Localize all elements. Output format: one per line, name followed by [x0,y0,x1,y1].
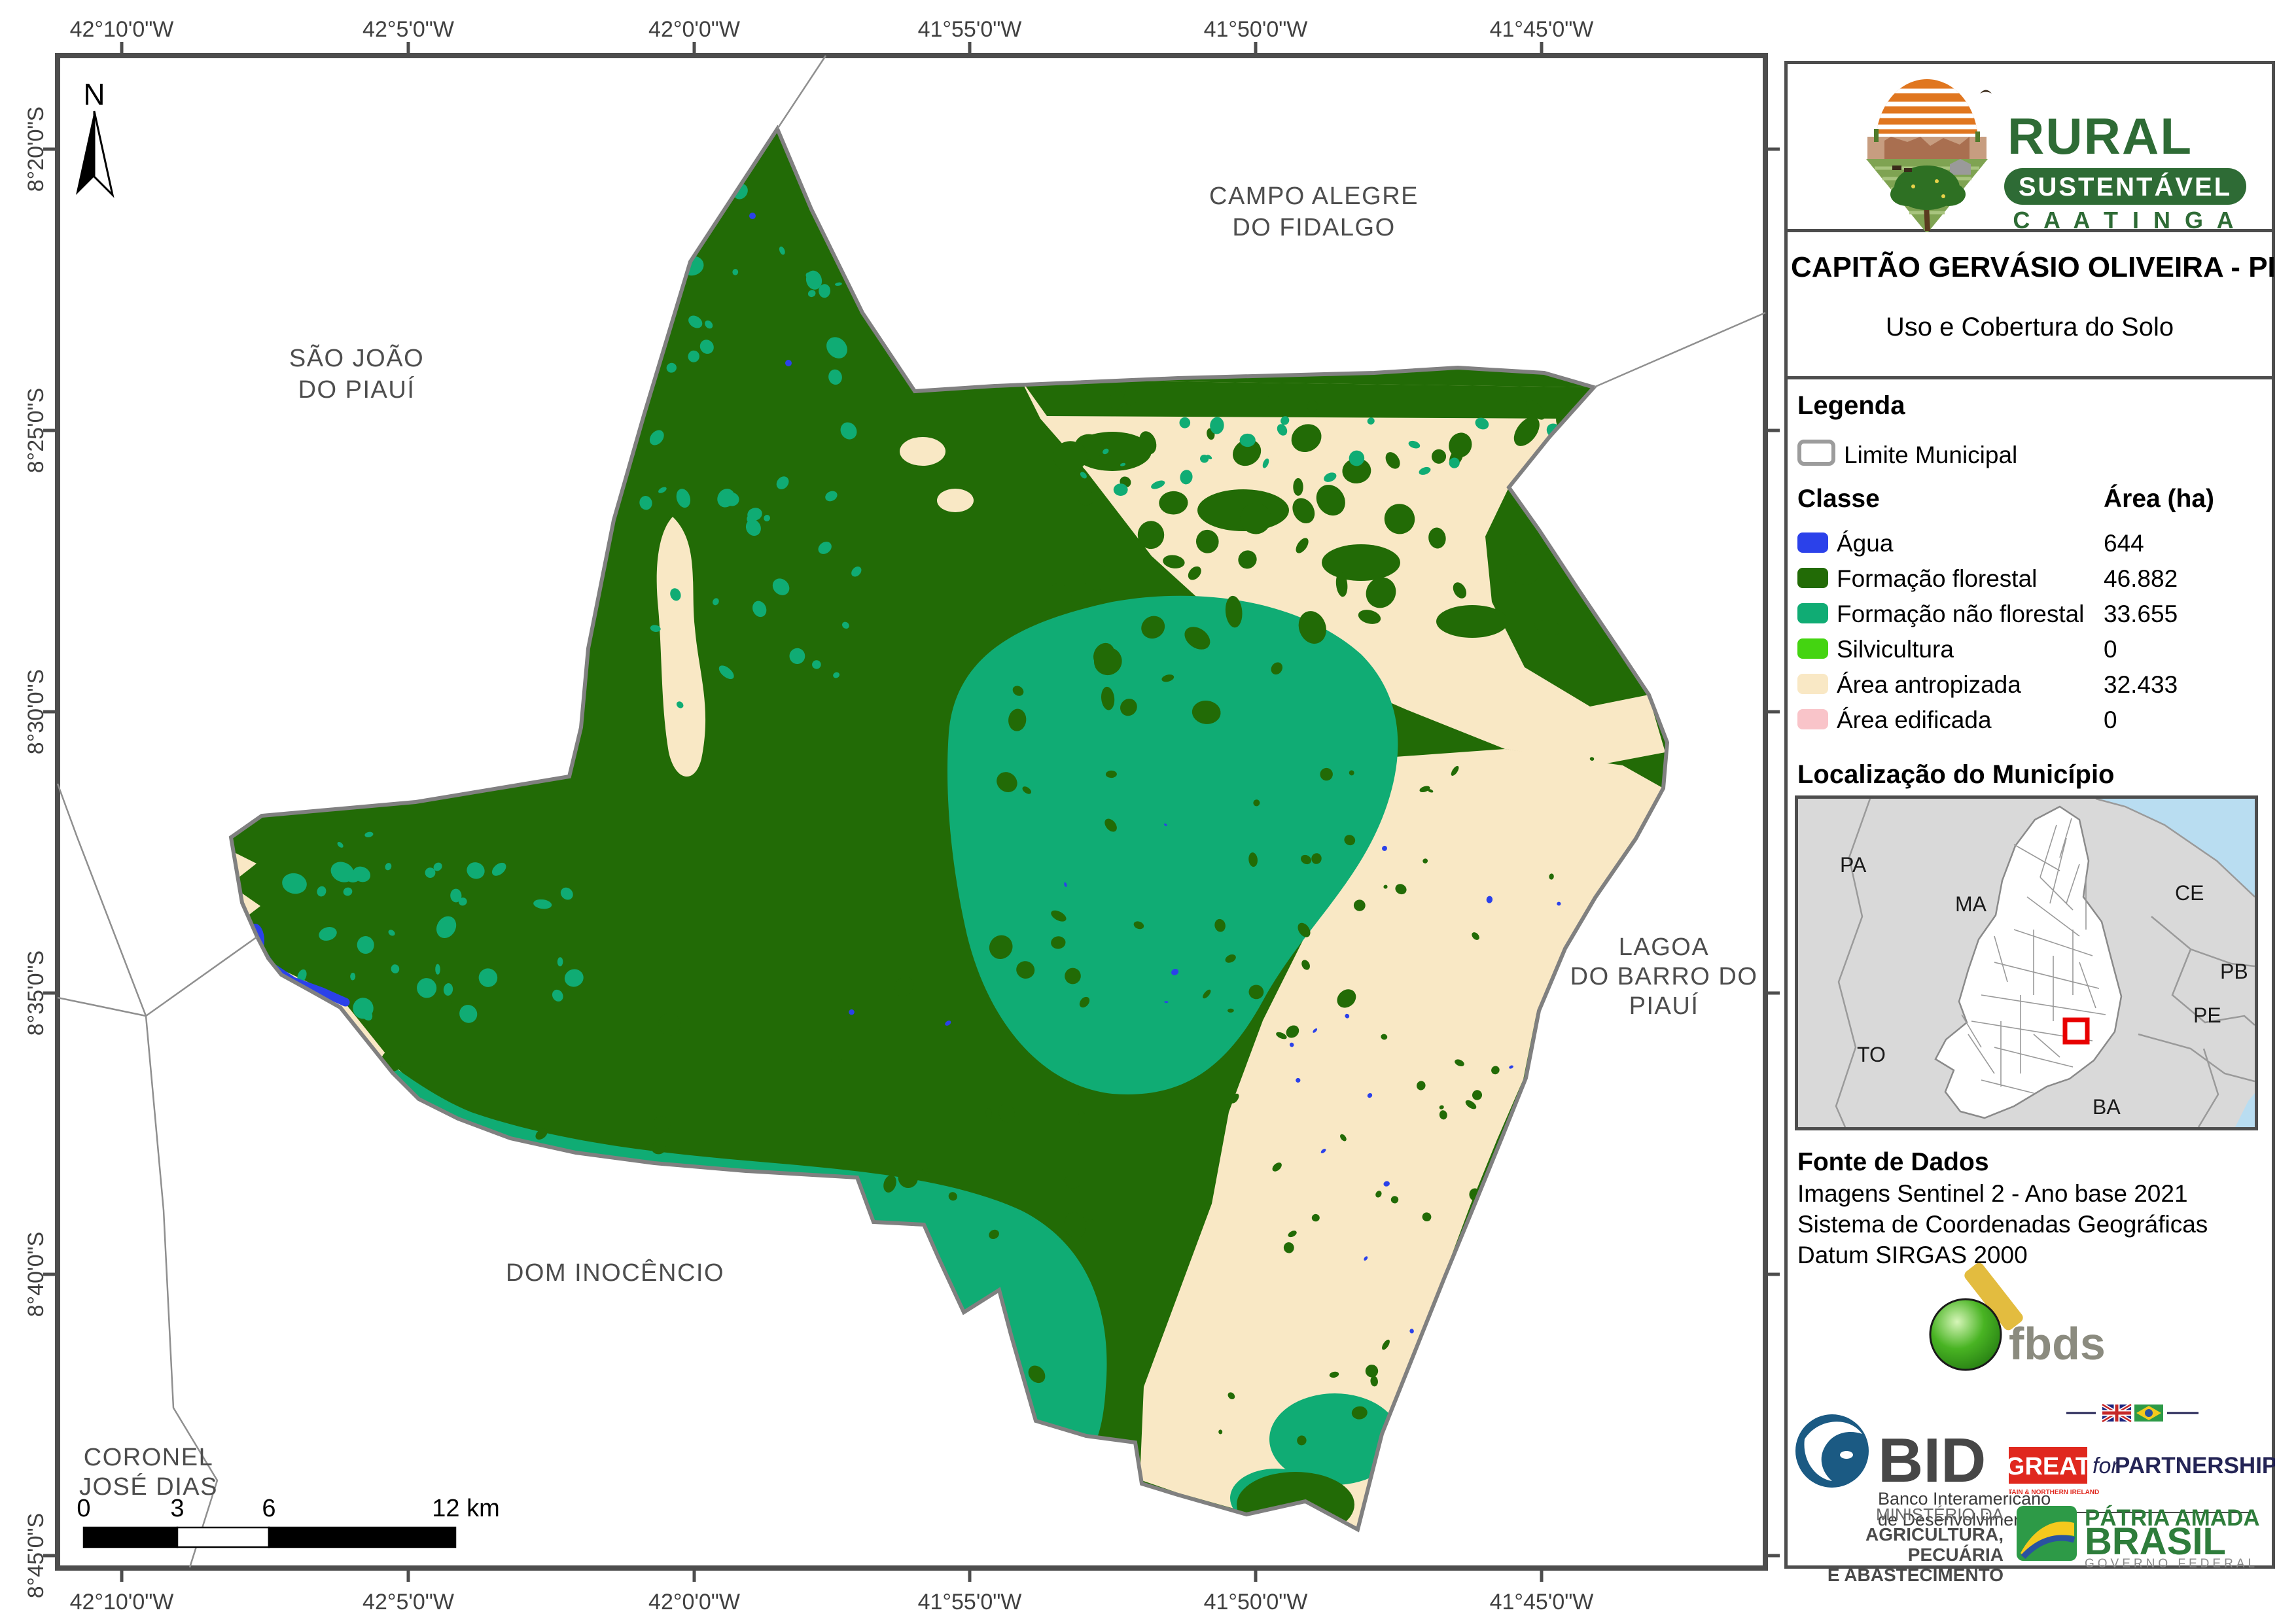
brazil-flag-icon [2134,1405,2163,1422]
label-lagoa: DO BARRO DO [1570,963,1758,990]
coord-left-2: 8°30'0"S [24,669,48,754]
legend-label-silvicultura: Silvicultura [1837,636,1954,663]
landcover-forest-blob [1436,605,1508,638]
fbds-logo: fbds [1911,1243,2107,1380]
label-sao-joao: SÃO JOÃO [289,344,424,372]
rural-sustentavel-caatinga-logo: RURAL SUSTENTÁVEL C A A T I N G A [1845,69,2264,232]
great-wordmark: GREAT [2009,1453,2091,1480]
inset-ocean-corner [2235,1093,2255,1127]
inset-municipality-highlight [2065,1020,2087,1042]
coord-top-3: 41°55'0"W [918,17,1022,42]
great-sub: BRITAIN & NORTHERN IRELAND [2009,1489,2099,1496]
coord-bottom-4: 41°50'0"W [1204,1590,1308,1614]
location-heading: Localização do Município [1797,760,2115,789]
scale-label-12: 12 km [432,1495,499,1522]
legend-swatch-edificada [1797,709,1828,729]
legend-value-agua: 644 [2104,530,2144,557]
legend-col-classe: Classe [1797,485,1880,514]
label-lagoa: LAGOA [1619,934,1709,961]
label-coronel: JOSÉ DIAS [79,1473,218,1501]
map-layout-sheet: 42°10'0"W 42°5'0"W 42°0'0"W 41°55'0"W 41… [0,0,2296,1623]
inset-state-pb: PB [2220,960,2248,983]
coord-bottom-3: 41°55'0"W [918,1590,1022,1614]
coord-top-5: 41°45'0"W [1490,17,1594,42]
logo-fruit [1935,179,1939,183]
legend-value-antropizada: 32.433 [2104,671,2178,699]
legend-swatch-antropizada [1797,674,1828,694]
logo-fruit [1911,184,1915,188]
map-title: CAPITÃO GERVÁSIO OLIVEIRA - PI [1791,252,2269,283]
bid-emblem-dot [1840,1451,1853,1459]
ministry-logo: MINISTÉRIO DA AGRICULTURA, PECUÁRIA E AB… [1793,1505,2004,1585]
scale-label-3: 3 [170,1495,184,1522]
label-dom-inocencio: DOM INOCÊNCIO [506,1259,724,1287]
logo-goat [1904,168,1912,172]
water-dot [749,213,756,219]
logo-bird-icon [1980,90,1992,94]
coord-bottom-0: 42°10'0"W [70,1590,174,1614]
inset-state-pe: PE [2193,1003,2221,1027]
legend-swatch-agua [1797,532,1828,553]
coord-left-4: 8°40'0"S [24,1232,48,1317]
label-lagoa: PIAUÍ [1629,992,1699,1020]
great-partnership-logo: GREAT for PARTNERSHIP BRITAIN & NORTHERN… [2009,1393,2275,1518]
coord-top-4: 41°50'0"W [1204,17,1308,42]
label-sao-joao: DO PIAUÍ [298,375,415,404]
source-heading: Fonte de Dados [1797,1149,1989,1177]
legend-label-edificada: Área edificada [1837,707,1992,734]
brasil-line3: GOVERNO FEDERAL [2085,1557,2258,1570]
coord-bottom-2: 42°0'0"W [648,1590,740,1614]
location-inset-map: PA MA CE PB PE TO BA [1798,799,2255,1127]
legend-swatch-nao-florestal [1797,603,1828,623]
fbds-wordmark: fbds [2009,1318,2106,1369]
logo-cactus [1975,131,1980,142]
logo-goat [1892,166,1901,170]
north-label: N [83,77,105,111]
inset-state-ba: BA [2093,1095,2121,1119]
label-campo-alegre: CAMPO ALEGRE [1209,183,1419,210]
coord-left-1: 8°25'0"S [24,388,48,473]
legend-heading: Legenda [1797,391,1905,420]
great-partnership: PARTNERSHIP [2115,1453,2275,1478]
scale-label-0: 0 [77,1495,90,1522]
coord-left-0: 8°20'0"S [24,107,48,192]
legend-swatch-florestal [1797,568,1828,588]
coord-bottom-1: 42°5'0"W [362,1590,454,1614]
limite-municipal-label: Limite Municipal [1844,442,2017,469]
bid-wordmark: BID [1878,1425,1986,1495]
legend-label-nao-florestal: Formação não florestal [1837,601,2084,628]
logo-tree-canopy [1932,183,1966,206]
legend-col-area: Área (ha) [2104,485,2214,514]
inset-state-ce: CE [2175,881,2204,905]
legend-value-nao-florestal: 33.655 [2104,601,2178,628]
legend-value-florestal: 46.882 [2104,565,2178,593]
ministry-line1: MINISTÉRIO DA [1793,1505,2004,1524]
map-subtitle: Uso e Cobertura do Solo [1791,313,2269,341]
label-campo-alegre: DO FIDALGO [1232,214,1395,241]
source-line-1: Imagens Sentinel 2 - Ano base 2021 [1797,1181,2188,1208]
patria-amada-brasil-logo: PÁTRIA AMADA BRASIL GOVERNO FEDERAL [2017,1502,2275,1570]
legend-value-edificada: 0 [2104,707,2117,734]
inset-state-ma: MA [1955,892,1987,916]
legend-label-agua: Água [1837,530,1893,557]
coord-left-5: 8°45'0"S [24,1513,48,1598]
inset-state-pa: PA [1840,853,1867,877]
coord-top-2: 42°0'0"W [648,17,740,42]
brand-caatinga: C A A T I N G A [2013,207,2237,232]
legend-label-antropizada: Área antropizada [1837,671,2021,699]
label-coronel: CORONEL [84,1444,213,1471]
water-dot [785,360,792,366]
logo-sun [1876,79,1978,142]
logo-fruit [1941,194,1945,198]
limite-municipal-swatch [1797,440,1835,466]
inset-state-to: TO [1857,1043,1886,1066]
fbds-sphere [1930,1299,2001,1370]
ministry-line2: AGRICULTURA, PECUÁRIA [1793,1524,2004,1565]
location-inset-frame: PA MA CE PB PE TO BA [1795,795,2258,1130]
main-map: 42°10'0"W 42°5'0"W 42°0'0"W 41°55'0"W 41… [0,0,1806,1623]
legend-value-silvicultura: 0 [2104,636,2117,663]
landcover-forest-blob [1322,544,1400,581]
scale-label-6: 6 [262,1495,275,1522]
logo-tree-canopy [1890,183,1924,206]
source-line-2: Sistema de Coordenadas Geográficas [1797,1212,2208,1238]
legend-swatch-silvicultura [1797,638,1828,659]
ministry-line3: E ABASTECIMENTO [1793,1565,2004,1585]
landcover-anthropized-patch [900,437,945,466]
legend-label-florestal: Formação florestal [1837,565,2037,593]
logo-cactus [1874,129,1879,142]
uk-flag-icon [2102,1405,2131,1422]
brand-rural: RURAL [2007,107,2193,165]
coord-bottom-5: 41°45'0"W [1490,1590,1594,1614]
coord-left-3: 8°35'0"S [24,951,48,1036]
landcover-anthropized-patch [937,489,974,512]
coord-top-0: 42°10'0"W [70,17,174,42]
coord-top-1: 42°5'0"W [362,17,454,42]
brand-sustentavel: SUSTENTÁVEL [2019,172,2232,201]
